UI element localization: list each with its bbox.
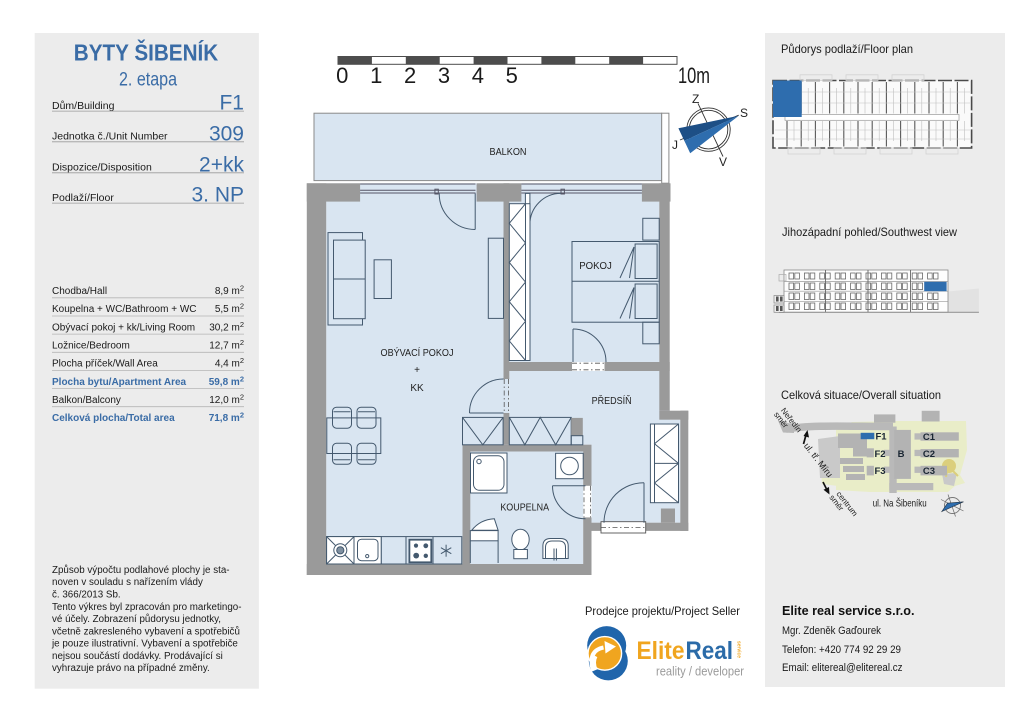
- svg-text:2: 2: [404, 63, 416, 88]
- svg-text:Půdorys podlaží/Floor plan: Půdorys podlaží/Floor plan: [781, 42, 913, 56]
- svg-text:S: S: [740, 106, 748, 120]
- svg-text:10m: 10m: [678, 63, 710, 88]
- svg-text:Mgr. Zdeněk Gaďourek: Mgr. Zdeněk Gaďourek: [782, 625, 881, 637]
- svg-text:vyhrazuje právo na případné zm: vyhrazuje právo na případné změny.: [52, 663, 210, 674]
- svg-text:Elite: Elite: [637, 637, 685, 665]
- svg-text:Real: Real: [686, 637, 734, 665]
- svg-text:4,4 m2: 4,4 m2: [215, 356, 244, 370]
- svg-text:59,8 m2: 59,8 m2: [209, 374, 244, 388]
- svg-text:2. etapa: 2. etapa: [119, 70, 177, 91]
- svg-text:Způsob výpočtu podlahové ploch: Způsob výpočtu podlahové plochy je sta-: [52, 565, 230, 576]
- svg-text:Prodejce projektu/Project Sell: Prodejce projektu/Project Seller: [585, 604, 740, 618]
- svg-text:Koupelna + WC/Bathroom + WC: Koupelna + WC/Bathroom + WC: [52, 304, 197, 315]
- svg-text:C2: C2: [923, 449, 935, 460]
- svg-text:Plocha příček/Wall Area: Plocha příček/Wall Area: [52, 359, 158, 370]
- svg-text:PŘEDSÍŇ: PŘEDSÍŇ: [592, 394, 632, 407]
- svg-text:B: B: [898, 449, 905, 460]
- svg-text:BYTY ŠIBENÍK: BYTY ŠIBENÍK: [74, 39, 219, 66]
- svg-text:Plocha bytu/Apartment Area: Plocha bytu/Apartment Area: [52, 377, 187, 388]
- svg-text:KOUPELNA: KOUPELNA: [500, 503, 549, 514]
- svg-text:Jednotka č./Unit Number: Jednotka č./Unit Number: [52, 131, 168, 143]
- svg-text:Ložnice/Bedroom: Ložnice/Bedroom: [52, 341, 130, 352]
- svg-text:F2: F2: [874, 449, 885, 460]
- svg-text:č. 366/2013 Sb.: č. 366/2013 Sb.: [52, 589, 121, 600]
- svg-text:Telefon: +420 774 92 29 29: Telefon: +420 774 92 29 29: [782, 644, 901, 656]
- svg-text:BALKON: BALKON: [490, 147, 527, 158]
- svg-text:5,5 m2: 5,5 m2: [215, 302, 244, 316]
- svg-text:0: 0: [336, 63, 348, 88]
- svg-text:noven v souladu s nařízením vl: noven v souladu s nařízením vlády: [52, 577, 203, 588]
- svg-text:F3: F3: [874, 466, 885, 477]
- svg-text:5: 5: [506, 63, 518, 88]
- svg-text:12,7 m2: 12,7 m2: [209, 338, 244, 352]
- svg-text:Obývací pokoj + kk/Living Room: Obývací pokoj + kk/Living Room: [52, 322, 195, 333]
- svg-text:71,8 m2: 71,8 m2: [209, 411, 244, 425]
- svg-text:vé účely. Zobrazení půdorysu j: vé účely. Zobrazení půdorysu jednotky,: [52, 614, 221, 625]
- svg-text:nejsou součástí dodávky. Prodá: nejsou součástí dodávky. Prodávající si: [52, 651, 223, 662]
- svg-text:Jihozápadní pohled/Southwest v: Jihozápadní pohled/Southwest view: [782, 225, 957, 239]
- svg-text:Podlaží/Floor: Podlaží/Floor: [52, 192, 114, 204]
- svg-text:C3: C3: [923, 466, 935, 477]
- svg-text:ul. Na Šibeníku: ul. Na Šibeníku: [873, 497, 927, 510]
- svg-text:J: J: [672, 138, 678, 152]
- svg-text:3: 3: [438, 63, 450, 88]
- svg-text:Elite real service s.r.o.: Elite real service s.r.o.: [782, 604, 915, 618]
- svg-text:Z: Z: [692, 92, 699, 106]
- svg-text:service: service: [736, 641, 742, 658]
- svg-text:F1: F1: [875, 431, 887, 442]
- svg-text:Balkon/Balcony: Balkon/Balcony: [52, 395, 121, 406]
- svg-text:C1: C1: [923, 432, 936, 443]
- svg-text:POKOJ: POKOJ: [579, 261, 612, 272]
- svg-text:V: V: [719, 155, 727, 169]
- svg-text:Celková plocha/Total area: Celková plocha/Total area: [52, 413, 175, 424]
- svg-text:Email: elitereal@elitereal.cz: Email: elitereal@elitereal.cz: [782, 662, 903, 674]
- svg-text:Tento výkres byl zpracován pro: Tento výkres byl zpracován pro marketing…: [52, 602, 242, 613]
- svg-text:je pouze ilustrativní. Vybaven: je pouze ilustrativní. Vybavení a spotře…: [51, 639, 238, 650]
- svg-text:OBÝVACÍ POKOJ: OBÝVACÍ POKOJ: [381, 346, 454, 359]
- svg-text:reality / developer: reality / developer: [656, 664, 745, 679]
- svg-text:12,0 m2: 12,0 m2: [209, 392, 244, 406]
- svg-text:+: +: [414, 365, 420, 376]
- svg-text:včetně zakresleného vybavení a: včetně zakresleného vybavení a spotřebič…: [52, 626, 240, 637]
- svg-text:Chodba/Hall: Chodba/Hall: [52, 286, 107, 297]
- svg-text:1: 1: [370, 63, 382, 88]
- svg-text:4: 4: [472, 63, 484, 88]
- svg-text:Dům/Building: Dům/Building: [52, 100, 115, 112]
- svg-text:KK: KK: [410, 383, 424, 394]
- svg-text:30,2 m2: 30,2 m2: [209, 320, 244, 334]
- svg-text:8,9 m2: 8,9 m2: [215, 284, 244, 298]
- svg-text:Celková situace/Overall situat: Celková situace/Overall situation: [781, 388, 941, 402]
- svg-text:Dispozice/Disposition: Dispozice/Disposition: [52, 162, 152, 174]
